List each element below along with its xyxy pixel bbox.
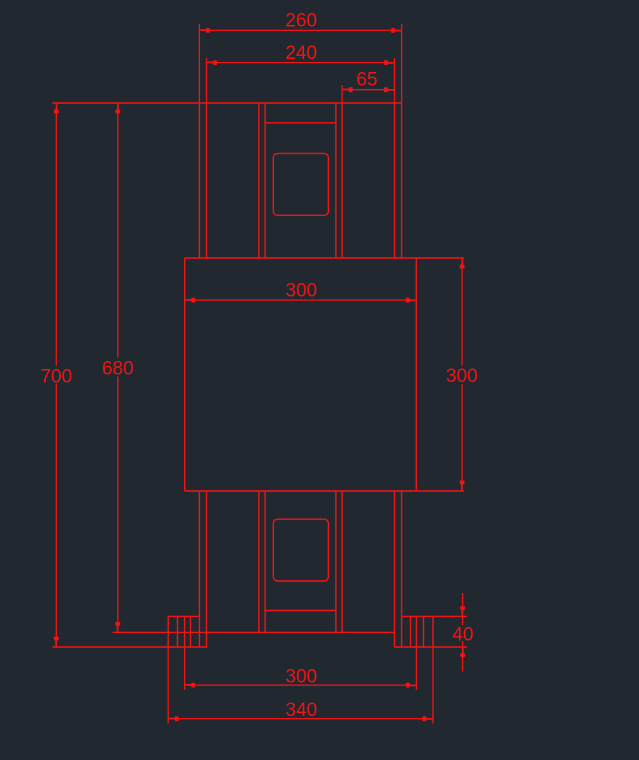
svg-text:700: 700	[40, 367, 72, 388]
svg-text:340: 340	[286, 700, 318, 721]
svg-text:40: 40	[452, 625, 473, 646]
svg-text:65: 65	[356, 70, 377, 91]
svg-text:300: 300	[286, 281, 318, 302]
svg-text:240: 240	[285, 43, 317, 64]
svg-text:260: 260	[285, 11, 317, 32]
svg-text:300: 300	[446, 366, 478, 387]
svg-text:300: 300	[286, 667, 318, 688]
svg-text:680: 680	[102, 359, 134, 380]
